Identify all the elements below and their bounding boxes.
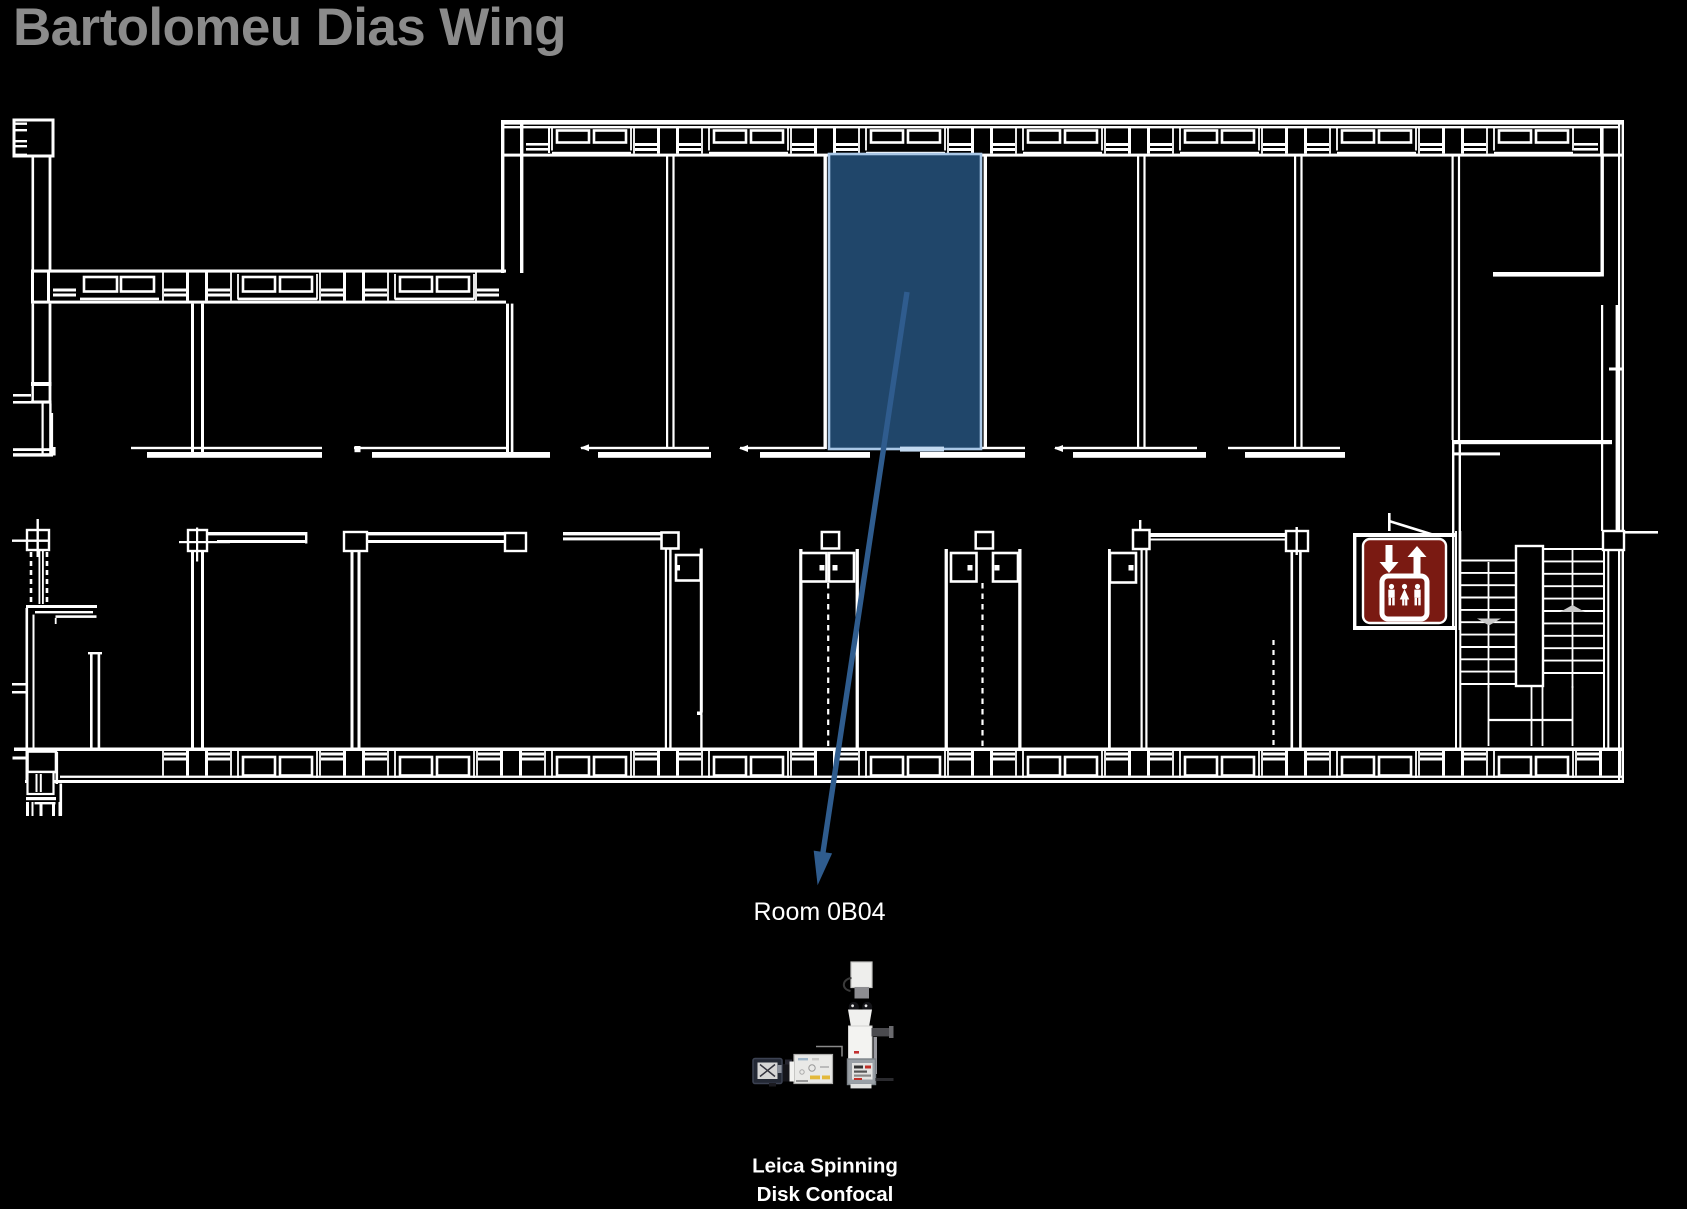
svg-text:Leica Spinning: Leica Spinning <box>752 1155 898 1178</box>
svg-text:Room 0B04: Room 0B04 <box>754 898 886 926</box>
svg-text:Disk Confocal: Disk Confocal <box>757 1183 894 1206</box>
